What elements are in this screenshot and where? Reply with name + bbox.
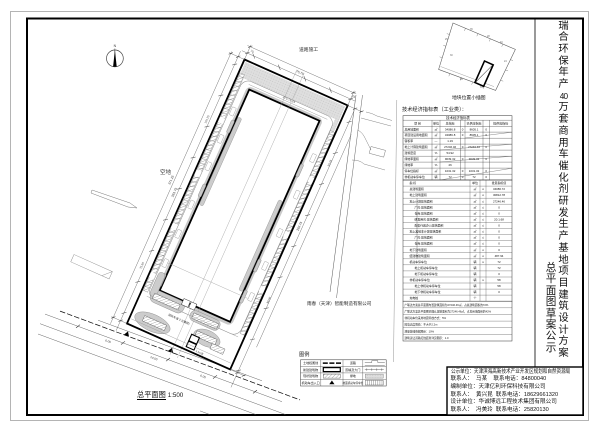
svg-text:地面机动车停车位: 地面机动车停车位 [343,381,364,385]
svg-text:㎡: ㎡ [474,217,477,222]
svg-text:厂房:建筑面积: 厂房:建筑面积 [415,235,433,240]
svg-text:停车位指标: 停车位指标 [405,168,420,173]
svg-text:围墙及大门: 围墙及大门 [345,367,360,372]
svg-text:26: 26 [448,163,452,167]
svg-text:辆: 辆 [474,259,477,264]
svg-text:54.92: 54.92 [446,151,454,155]
svg-text:8605.1: 8605.1 [470,127,479,131]
svg-text:㎡: ㎡ [474,198,477,203]
svg-text:≤: ≤ [482,205,484,209]
svg-text:1031.32: 1031.32 [445,169,456,173]
svg-text:项 目: 项 目 [414,122,421,126]
svg-text:单位: 单位 [472,180,478,185]
svg-text:≤: ≤ [482,193,484,197]
svg-text:绿地率: 绿地率 [405,162,414,167]
svg-text:≥: ≥ [482,260,484,264]
svg-text:0: 0 [498,205,500,209]
svg-text:0: 0 [498,290,500,294]
svg-text:283.75: 283.75 [171,187,179,198]
svg-text:28: 28 [487,35,490,38]
svg-text:仓库:建筑面积: 仓库:建筑面积 [415,241,433,246]
svg-text:非机动车停车位: 非机动车停车位 [405,174,425,179]
svg-text:35: 35 [470,28,473,31]
svg-text:101.25: 101.25 [203,114,210,124]
svg-text:㎡: ㎡ [435,144,438,149]
svg-text:个: 个 [474,296,477,300]
svg-text:辆: 辆 [474,271,477,276]
svg-text:27246.46: 27246.46 [493,199,505,203]
svg-text:指 标: 指 标 [410,180,417,185]
svg-text:1.19: 1.19 [447,139,453,143]
svg-text:非机动车停车位: 非机动车停车位 [410,277,430,282]
svg-text:机动车出入口: 机动车出入口 [302,380,320,385]
svg-text:现状建筑物: 现状建筑物 [303,373,318,378]
svg-text:0: 0 [498,242,500,246]
svg-text:58: 58 [497,284,501,288]
svg-text:≥: ≥ [482,278,484,282]
svg-text:机动车停车位: 机动车停车位 [410,259,427,264]
svg-text:地上其他非计容建筑面积: 地上其他非计容建筑面积 [410,229,442,234]
svg-text:㎡: ㎡ [474,253,477,258]
svg-text:地下机动车停车位: 地下机动车停车位 [415,271,438,276]
svg-text:绿地: 绿地 [350,373,356,378]
svg-text:㎡: ㎡ [435,132,438,137]
svg-text:地上非机动车停车位: 地上非机动车停车位 [415,283,441,288]
svg-text:容积率: 容积率 [405,138,414,143]
svg-text:地上建筑面积: 地上建筑面积 [410,192,427,197]
svg-text:≤: ≤ [482,218,484,222]
svg-text:㎡: ㎡ [435,126,438,131]
svg-text:结建物建筑面积: 结建物建筑面积 [410,253,430,258]
svg-text:总用地面积: 总用地面积 [405,126,420,131]
svg-text:总建筑面积: 总建筑面积 [410,186,425,191]
svg-text:非机动车位采用地面停放方式：5%: 非机动车位采用地面停放方式：5% [405,316,447,320]
svg-text:广联达方案总平面图已确认规划面积为27246.46㎡，占总用: 广联达方案总平面图已确认规划面积为27246.46㎡，占总用地面积的42% [405,310,492,314]
svg-text:1031.32: 1031.32 [469,169,480,173]
svg-text:研发用房:建筑面积: 研发用房:建筑面积 [415,217,439,222]
svg-text:6.00: 6.00 [200,374,207,380]
svg-text:地上计容建筑面积: 地上计容建筑面积 [405,144,428,149]
svg-text:地下建筑面积: 地下建筑面积 [410,247,427,252]
svg-text:34086.8: 34086.8 [445,127,456,131]
svg-text:拟供应指标: 拟供应指标 [493,121,508,126]
svg-text:㎡: ㎡ [474,204,477,209]
svg-text:㎡: ㎡ [474,223,477,228]
svg-text:20.1.68: 20.1.68 [494,218,504,222]
svg-text:已供应指标: 已供应指标 [466,121,481,126]
svg-text:487.94: 487.94 [495,254,504,258]
svg-text:地上机动车停车位: 地上机动车停车位 [415,265,438,270]
svg-text:㎡: ㎡ [474,192,477,197]
svg-text:土地权属线: 土地权属线 [303,360,318,365]
svg-text:≤: ≤ [482,254,484,258]
svg-text:㎡: ㎡ [474,247,477,252]
svg-text:72: 72 [497,260,501,264]
svg-text:≤: ≤ [482,230,484,234]
svg-text:㎡: ㎡ [474,229,477,234]
svg-text:项目建设用地面积: 项目建设用地面积 [405,132,428,137]
svg-text:27246.46: 27246.46 [444,145,456,149]
svg-text:总指标: 总指标 [446,121,455,126]
svg-text:0: 0 [498,230,500,234]
svg-text:283.75: 283.75 [296,221,304,232]
svg-text:371.25: 371.25 [167,175,175,186]
svg-text:辆: 辆 [474,265,477,270]
svg-text:地上计容建筑面积: 地上计容建筑面积 [410,198,433,203]
svg-text:辆: 辆 [435,174,438,179]
svg-text:道路: 道路 [350,360,356,365]
svg-text:厂房:建筑面积: 厂房:建筑面积 [415,204,433,209]
svg-text:0: 0 [498,236,500,240]
svg-text:新建建筑物: 新建建筑物 [303,367,318,372]
svg-text:34086.8: 34086.8 [445,133,456,137]
svg-text:地下非机动车停车位: 地下非机动车停车位 [415,289,441,294]
svg-text:0: 0 [498,224,500,228]
svg-text:30812.78: 30812.78 [493,193,505,197]
svg-text:配套行政办公建筑面积: 配套行政办公建筑面积 [415,223,444,228]
svg-text:—: — [435,139,438,143]
svg-text:辆: 辆 [474,289,477,294]
svg-text:30: 30 [450,54,453,57]
svg-text:≤: ≤ [482,211,484,215]
svg-text:单位: 单位 [433,121,439,126]
svg-text:75: 75 [250,49,255,54]
svg-text:≤: ≤ [482,187,484,191]
svg-text:75.50: 75.50 [139,261,146,269]
svg-text:≤: ≤ [482,199,484,203]
svg-text:0: 0 [498,211,500,215]
svg-text:辆: 辆 [474,277,477,282]
svg-text:≤: ≤ [482,236,484,240]
svg-text:72: 72 [472,175,476,179]
svg-text:%: % [435,151,438,155]
svg-text:0: 0 [498,272,500,276]
svg-text:34086.72: 34086.72 [493,187,505,191]
svg-text:≤: ≤ [482,248,484,252]
svg-text:58: 58 [497,278,501,282]
svg-text:㎡: ㎡ [474,210,477,215]
svg-text:㎡: ㎡ [474,235,477,240]
svg-text:㎡: ㎡ [435,168,438,173]
svg-text:9039.32: 9039.32 [445,157,456,161]
svg-text:N: N [114,44,117,48]
svg-text:0: 0 [498,248,500,252]
svg-text:充电桩: 充电桩 [410,295,419,300]
svg-text:%: % [435,163,438,167]
svg-text:批复指标值: 批复指标值 [492,180,507,185]
svg-text:㎡: ㎡ [474,186,477,191]
svg-text:40: 40 [500,41,503,44]
svg-text:辆: 辆 [474,283,477,288]
svg-text:消防车道 2.2(兼顾): 消防车道 2.2(兼顾) [167,313,190,326]
svg-text:技术经济指标表: 技术经济指标表 [446,115,470,120]
svg-text:≤: ≤ [482,224,484,228]
svg-text:㎡: ㎡ [474,241,477,246]
svg-text:建筑密度: 建筑密度 [405,150,417,155]
svg-text:6.00: 6.00 [105,338,112,344]
svg-text:24.00: 24.00 [150,355,159,361]
svg-text:24: 24 [504,60,507,63]
svg-text:建筑退让道路红线距离详见图示：1.0: 建筑退让道路红线距离详见图示：1.0 [405,336,450,340]
svg-text:㎡: ㎡ [435,156,438,161]
svg-text:测量放线依据图示：10%: 测量放线依据图示：10% [405,329,435,333]
svg-text:围墙高度限值：不大于2.2m: 围墙高度限值：不大于2.2m [405,323,439,327]
svg-text:绿地率面积: 绿地率面积 [405,156,420,161]
svg-text:≤: ≤ [482,242,484,246]
svg-text:仓库:建筑面积: 仓库:建筑面积 [415,210,433,215]
svg-text:72: 72 [497,266,501,270]
svg-text:广联达方案总平面图布置建筑面积为27246.46㎡，占总建筑: 广联达方案总平面图布置建筑面积为27246.46㎡，占总建筑面积的72% [405,303,489,307]
